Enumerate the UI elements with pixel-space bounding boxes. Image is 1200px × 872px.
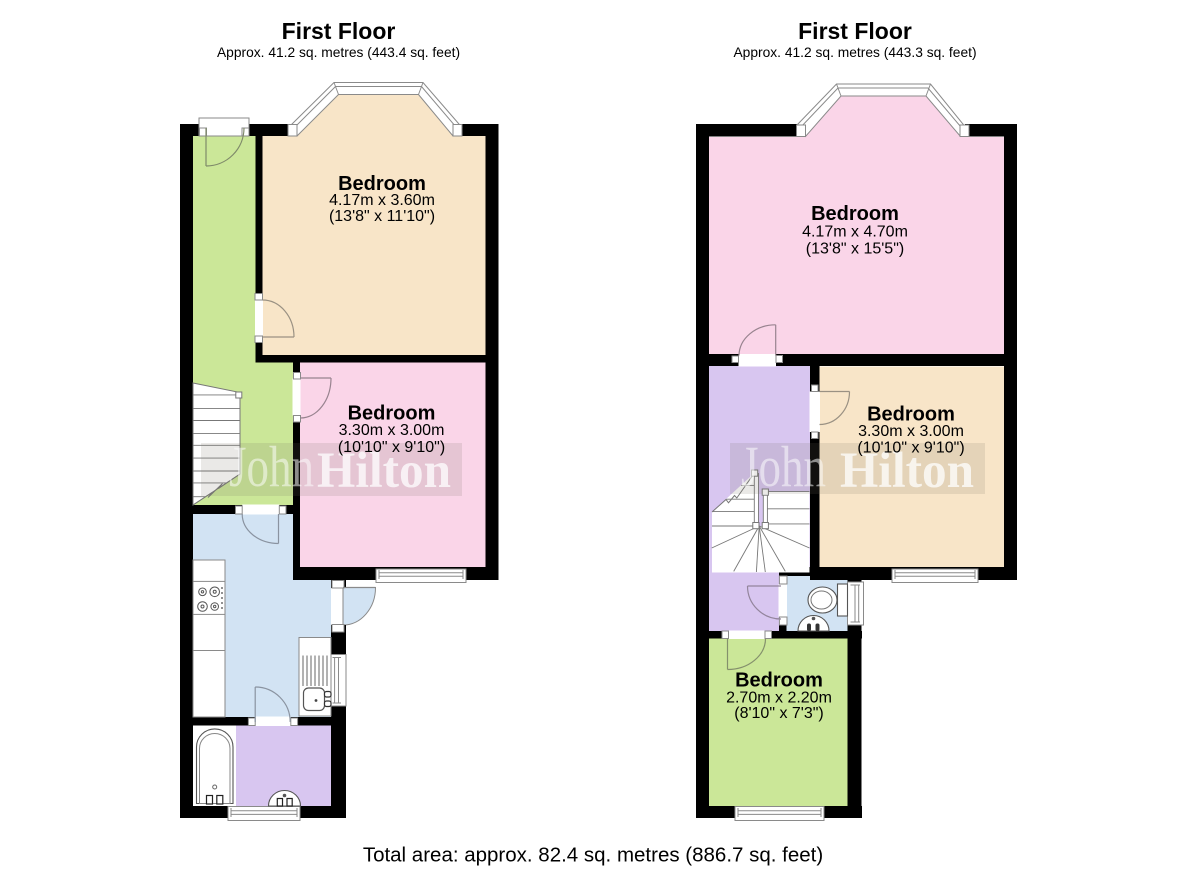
svg-text:4.17m x 3.60m: 4.17m x 3.60m [329,192,435,209]
svg-text:Bedroom: Bedroom [811,203,899,225]
svg-text:Total area: approx. 82.4 sq. m: Total area: approx. 82.4 sq. metres (886… [363,844,823,867]
svg-text:Approx. 41.2 sq. metres (443.4: Approx. 41.2 sq. metres (443.4 sq. feet) [217,45,460,60]
svg-text:John: John [229,434,314,499]
svg-text:First Floor: First Floor [282,18,396,44]
svg-text:Approx. 41.2 sq. metres (443.3: Approx. 41.2 sq. metres (443.3 sq. feet) [733,45,976,60]
svg-text:(13'8" x 11'10"): (13'8" x 11'10") [329,208,435,225]
svg-text:4.17m x 4.70m: 4.17m x 4.70m [802,224,908,241]
svg-text:3.30m x 3.00m: 3.30m x 3.00m [858,423,964,440]
svg-text:Bedroom: Bedroom [735,670,823,692]
svg-text:(10'10" x 9'10"): (10'10" x 9'10") [338,439,445,456]
svg-text:2.70m x 2.20m: 2.70m x 2.20m [726,690,832,707]
svg-text:First Floor: First Floor [798,18,912,44]
svg-text:(10'10" x 9'10"): (10'10" x 9'10") [857,440,964,457]
svg-text:3.30m x 3.00m: 3.30m x 3.00m [339,422,445,439]
svg-text:(8'10" x 7'3"): (8'10" x 7'3") [734,705,824,722]
svg-text:John: John [741,434,826,499]
svg-text:(13'8" x 15'5"): (13'8" x 15'5") [806,241,904,258]
